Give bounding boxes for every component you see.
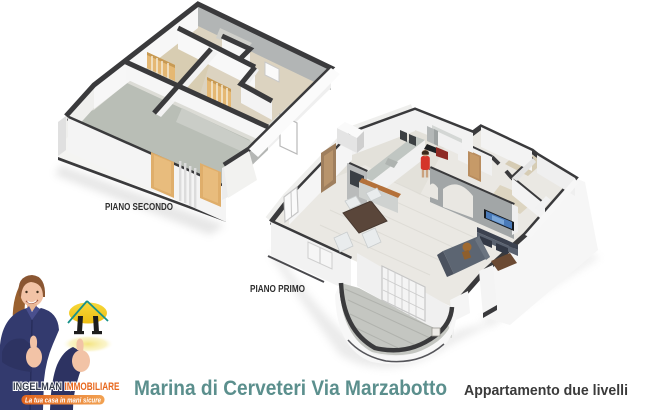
svg-text:La tua casa in mani sicure: La tua casa in mani sicure bbox=[25, 398, 101, 405]
svg-text:PIANO PRIMO: PIANO PRIMO bbox=[250, 284, 305, 295]
svg-text:INGELMAN: INGELMAN bbox=[13, 381, 62, 393]
svg-text:PIANO SECONDO: PIANO SECONDO bbox=[105, 202, 173, 213]
svg-text:IMMOBILIARE: IMMOBILIARE bbox=[65, 381, 120, 393]
svg-text:Appartamento due livelli: Appartamento due livelli bbox=[464, 383, 628, 399]
svg-text:Marina di Cerveteri Via Marzab: Marina di Cerveteri Via Marzabotto bbox=[134, 376, 447, 400]
